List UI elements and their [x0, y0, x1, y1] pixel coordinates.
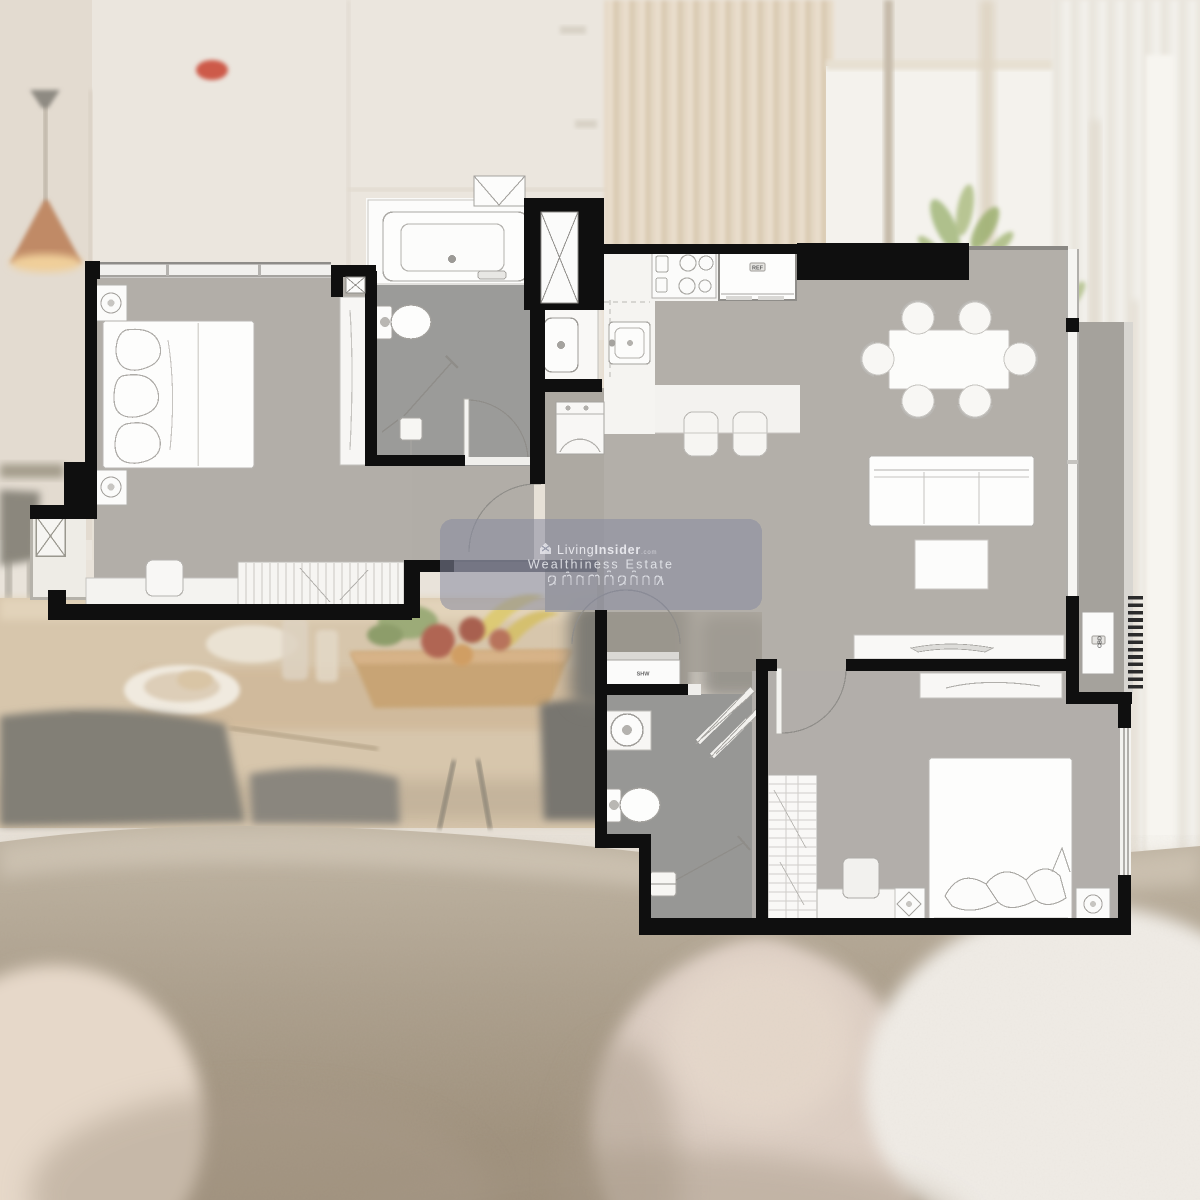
svg-text:Wealthiness Estate: Wealthiness Estate	[528, 558, 674, 572]
svg-text:REF: REF	[752, 265, 764, 271]
svg-text:CBD: CBD	[1098, 636, 1104, 648]
svg-text:SHW: SHW	[637, 672, 651, 678]
